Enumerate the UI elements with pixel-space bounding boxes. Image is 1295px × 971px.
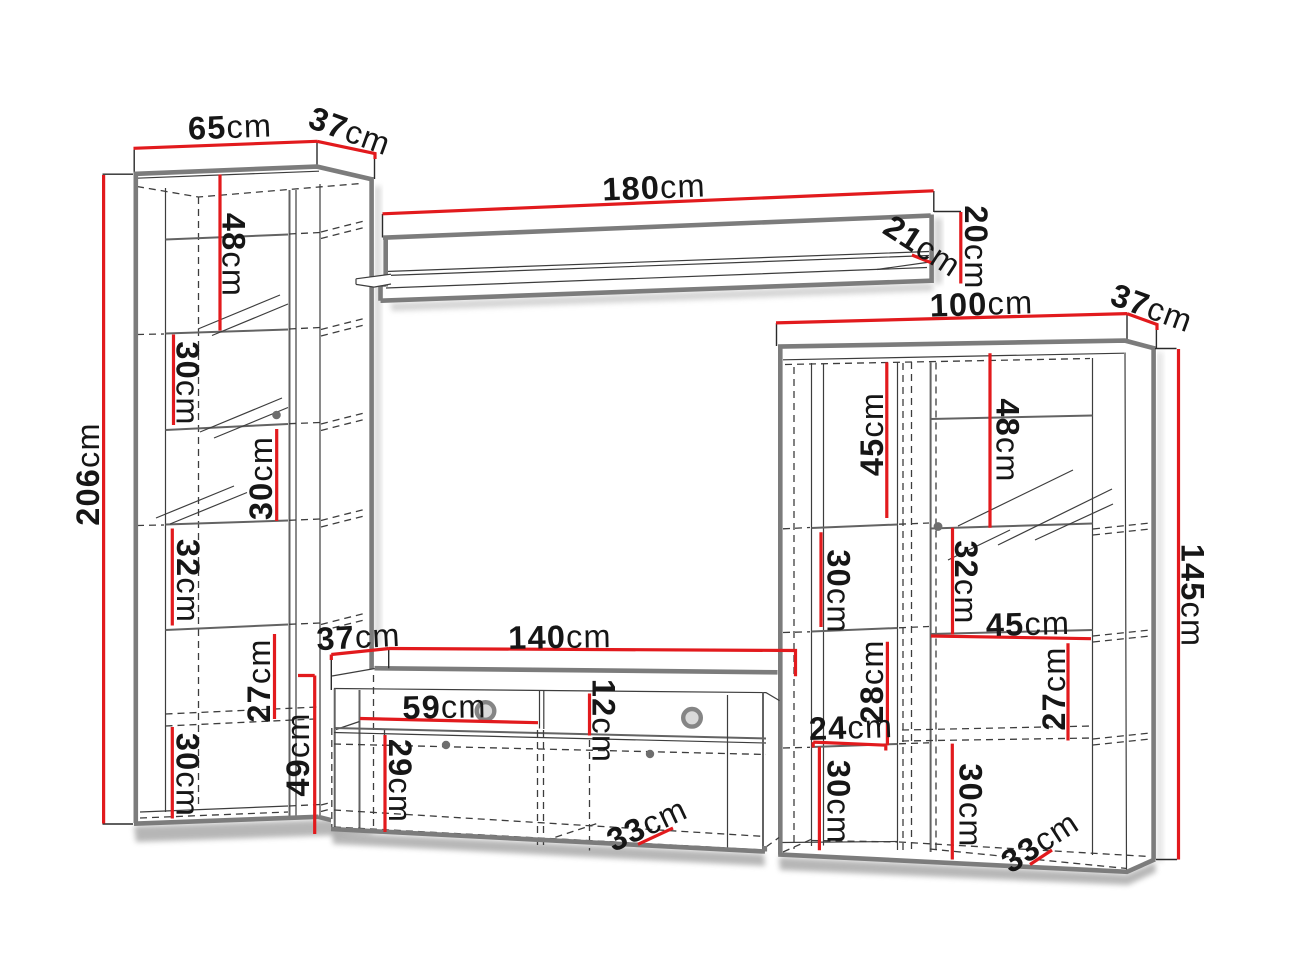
svg-text:30cm: 30cm (953, 763, 989, 847)
svg-text:65cm: 65cm (187, 107, 273, 146)
svg-text:12cm: 12cm (586, 679, 622, 763)
svg-text:32cm: 32cm (170, 539, 206, 623)
svg-text:30cm: 30cm (170, 733, 206, 817)
svg-text:30cm: 30cm (821, 549, 857, 633)
svg-text:100cm: 100cm (929, 284, 1034, 324)
svg-text:206cm: 206cm (70, 422, 106, 526)
svg-text:140cm: 140cm (508, 618, 612, 656)
svg-text:49cm: 49cm (280, 712, 316, 796)
svg-text:45cm: 45cm (985, 605, 1070, 643)
svg-text:20cm: 20cm (958, 205, 994, 289)
svg-text:145cm: 145cm (1175, 544, 1211, 648)
svg-text:45cm: 45cm (854, 392, 890, 476)
svg-text:32cm: 32cm (948, 540, 984, 624)
svg-text:30cm: 30cm (170, 341, 206, 425)
svg-text:48cm: 48cm (216, 213, 252, 297)
svg-text:37cm: 37cm (315, 617, 401, 657)
svg-text:27cm: 27cm (241, 638, 277, 722)
svg-text:30cm: 30cm (243, 436, 279, 520)
svg-text:59cm: 59cm (402, 688, 487, 725)
svg-text:48cm: 48cm (990, 398, 1026, 482)
svg-text:24cm: 24cm (808, 708, 894, 747)
svg-text:29cm: 29cm (382, 739, 418, 823)
svg-text:30cm: 30cm (821, 760, 857, 844)
svg-text:27cm: 27cm (1036, 646, 1072, 730)
svg-text:180cm: 180cm (602, 167, 707, 207)
